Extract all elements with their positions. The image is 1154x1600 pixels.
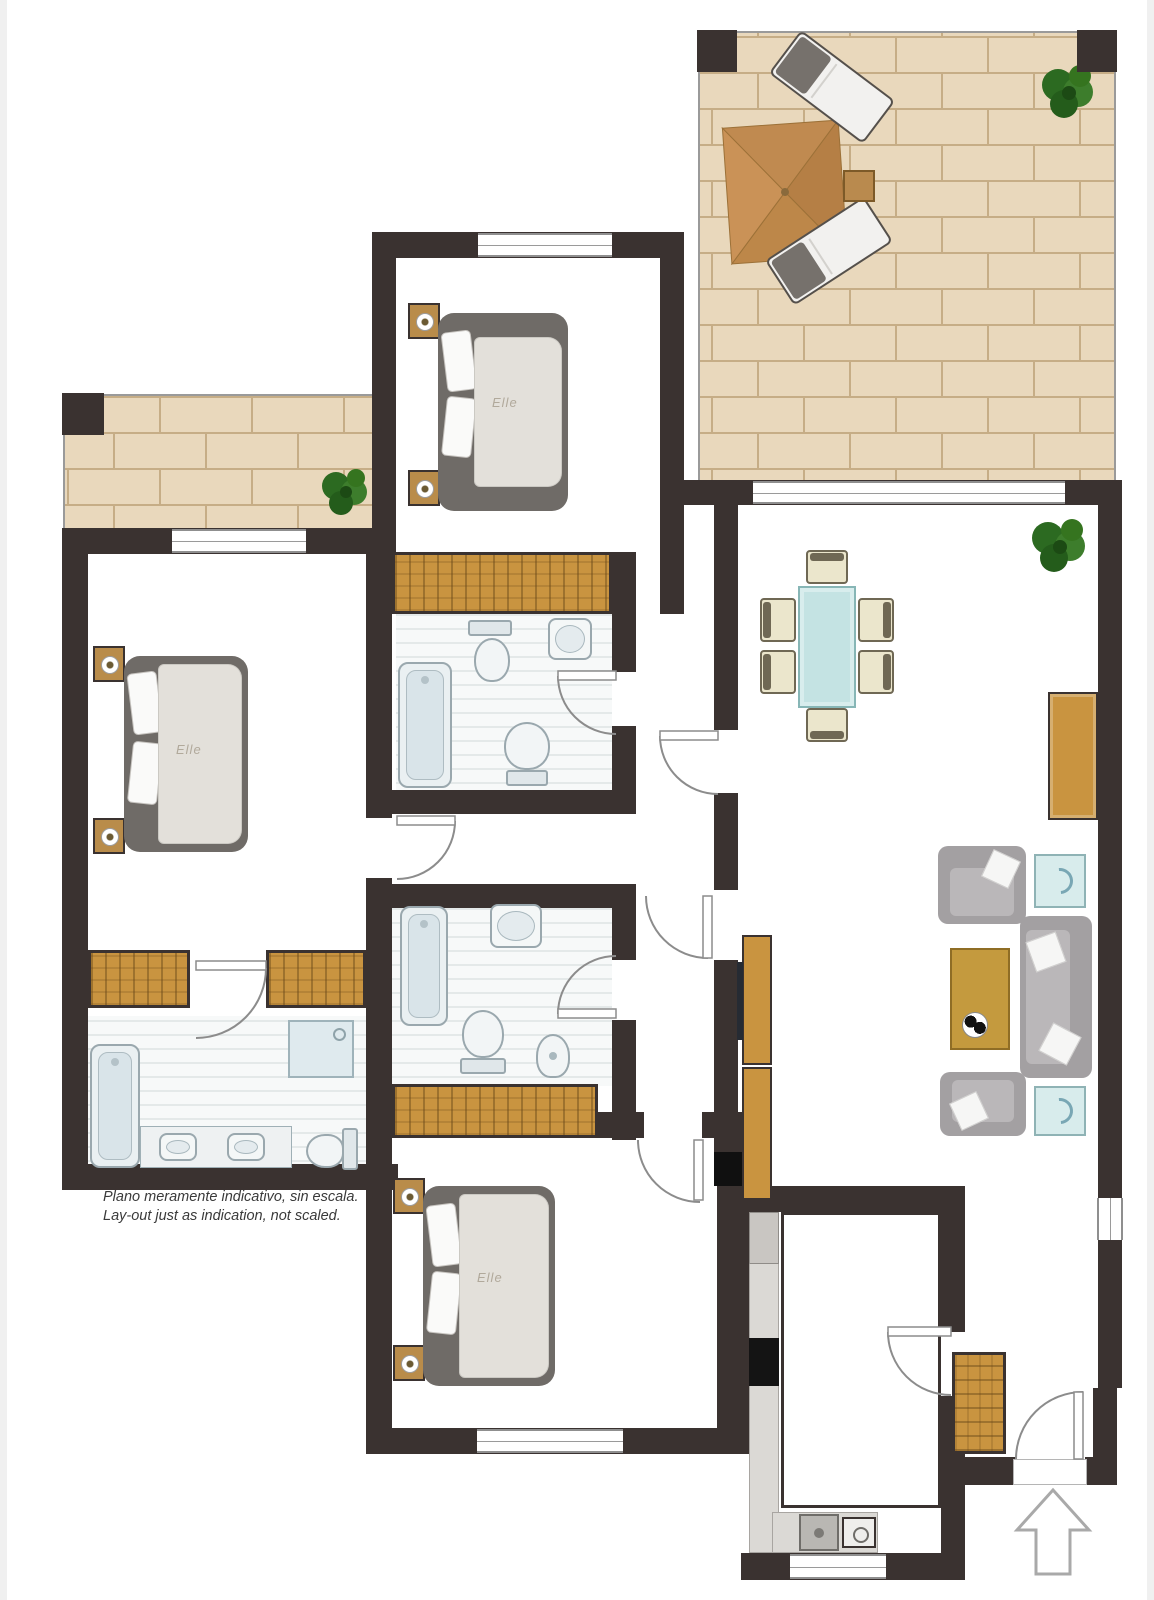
nightstand: [408, 303, 440, 339]
door-arc-living2: [646, 896, 708, 958]
disclaimer-line-2: Lay-out just as indication, not scaled.: [103, 1207, 403, 1226]
dining-chair: [806, 550, 848, 584]
bed-brand-label: Elle: [492, 395, 518, 410]
disclaimer-line-1: Plano meramente indicativo, sin escala.: [103, 1188, 403, 1207]
sink: [548, 618, 592, 660]
vanity-double-sink: [140, 1126, 292, 1168]
bathtub: [398, 662, 452, 788]
kitchen-island: [781, 1212, 941, 1508]
door-arc-living1: [660, 736, 718, 794]
wall: [714, 960, 738, 1152]
toilet: [462, 1010, 504, 1058]
wall: [1085, 1457, 1117, 1485]
dining-chair: [858, 598, 894, 642]
plant-icon-living: [1032, 519, 1085, 572]
armchair: [940, 1072, 1026, 1136]
wall: [612, 552, 636, 672]
bed-brand-label: Elle: [176, 742, 202, 757]
door-arc-master-bathroom: [196, 968, 266, 1038]
bed-master: Elle: [124, 656, 248, 852]
kitchen-sink: [799, 1514, 839, 1551]
door-leaf: [703, 896, 712, 958]
door-arc-bathroom2: [558, 956, 616, 1014]
bed-bedroom3: Elle: [423, 1186, 555, 1386]
decor-plate-icon: [1042, 1093, 1079, 1130]
sideboard: [1048, 692, 1098, 820]
toilet: [474, 638, 510, 682]
toilet-tank: [342, 1128, 358, 1170]
wall: [392, 790, 636, 814]
door-leaf: [558, 1009, 616, 1018]
bathtub: [400, 906, 448, 1026]
sink: [227, 1133, 265, 1161]
toilet-tank: [506, 770, 548, 786]
pillow: [441, 396, 477, 459]
side-table: [1034, 854, 1086, 908]
door-arc-entrance: [1016, 1392, 1083, 1459]
window-entry: [1097, 1198, 1123, 1240]
shower: [288, 1020, 354, 1078]
wall: [62, 554, 88, 1190]
wardrobe-master-left: [88, 950, 190, 1008]
wall: [598, 1112, 644, 1138]
nightstand: [93, 646, 125, 682]
sliding-door-terrace: [753, 481, 1065, 504]
armchair: [938, 846, 1026, 924]
dining-chair: [760, 598, 796, 642]
shoe-cabinet-entry: [952, 1352, 1006, 1454]
fridge: [749, 1212, 779, 1264]
wall: [612, 884, 636, 960]
door-leaf: [694, 1140, 703, 1200]
side-table: [1034, 1086, 1086, 1136]
wall: [714, 793, 738, 890]
wall: [741, 1186, 965, 1212]
right-edge-artifact: [1147, 0, 1154, 1600]
door-leaf: [660, 731, 718, 740]
entrance-threshold: [1013, 1459, 1087, 1485]
wall: [714, 480, 738, 730]
bathtub-master: [90, 1044, 140, 1168]
window-master-bedroom: [172, 529, 306, 553]
dining-chair: [806, 708, 848, 742]
toilet: [306, 1134, 344, 1168]
door-leaf: [558, 671, 616, 680]
dining-chair: [858, 650, 894, 694]
wall: [1098, 480, 1122, 1200]
tv-cabinet-lower: [742, 1067, 772, 1200]
sofa: [1020, 916, 1092, 1078]
sink: [490, 904, 542, 948]
sun-lounger: [765, 196, 893, 306]
oven: [749, 1338, 779, 1386]
toilet-tank: [460, 1058, 506, 1074]
toilet: [504, 722, 550, 770]
wall: [1098, 1240, 1122, 1388]
plant-icon-terrace: [1042, 65, 1093, 118]
door-leaf: [196, 961, 266, 970]
sink: [159, 1133, 197, 1161]
door-leaf: [1074, 1392, 1083, 1459]
window-kitchen: [790, 1554, 886, 1579]
dining-table: [798, 586, 856, 708]
duvet: [474, 337, 562, 487]
duvet: [459, 1194, 549, 1378]
toilet-tank: [468, 620, 512, 636]
wall: [612, 726, 636, 814]
wardrobe-master-right: [266, 950, 366, 1008]
bed-bedroom2: Elle: [438, 313, 568, 511]
floor-plan: Elle Elle Elle: [0, 0, 1154, 1600]
terrace-side-table: [843, 170, 875, 202]
door-leaf: [397, 816, 455, 825]
sun-lounger: [769, 30, 896, 144]
door-arc-bedroom3: [638, 1140, 700, 1202]
disclaimer-text: Plano meramente indicativo, sin escala. …: [103, 1188, 403, 1226]
entrance-arrow-icon: [1017, 1490, 1089, 1574]
tv-icon: [737, 962, 743, 1040]
wall: [965, 1457, 1017, 1485]
terrace-post: [697, 30, 737, 72]
nightstand: [393, 1345, 425, 1381]
left-edge-artifact: [0, 0, 7, 1600]
tv-cabinet-upper: [742, 935, 772, 1065]
wall: [660, 232, 684, 614]
nightstand: [408, 470, 440, 506]
window-bedroom3: [477, 1429, 623, 1453]
terrace-post: [62, 393, 104, 435]
window-bedroom2: [478, 233, 612, 257]
wall: [372, 232, 396, 554]
plant-icon-side-terrace: [322, 469, 367, 515]
terrace-main-floor: [699, 32, 1115, 482]
wall: [366, 554, 392, 818]
coffee-table-decor: [962, 1012, 988, 1038]
wardrobe-bedroom3: [392, 1084, 598, 1138]
decor-plate-icon: [1042, 863, 1079, 900]
terrace-post: [1077, 30, 1117, 72]
door-arc-bathroom1: [558, 676, 616, 734]
wardrobe-bedroom2: [392, 552, 612, 614]
wall: [1093, 1388, 1117, 1461]
bed-brand-label: Elle: [477, 1270, 503, 1285]
nightstand: [93, 818, 125, 854]
dining-chair: [760, 650, 796, 694]
coffee-table: [950, 948, 1010, 1050]
bidet: [536, 1034, 570, 1078]
door-arc-master-bedroom: [397, 821, 455, 879]
cooktop: [842, 1517, 876, 1548]
terrace-side-floor: [64, 395, 386, 529]
